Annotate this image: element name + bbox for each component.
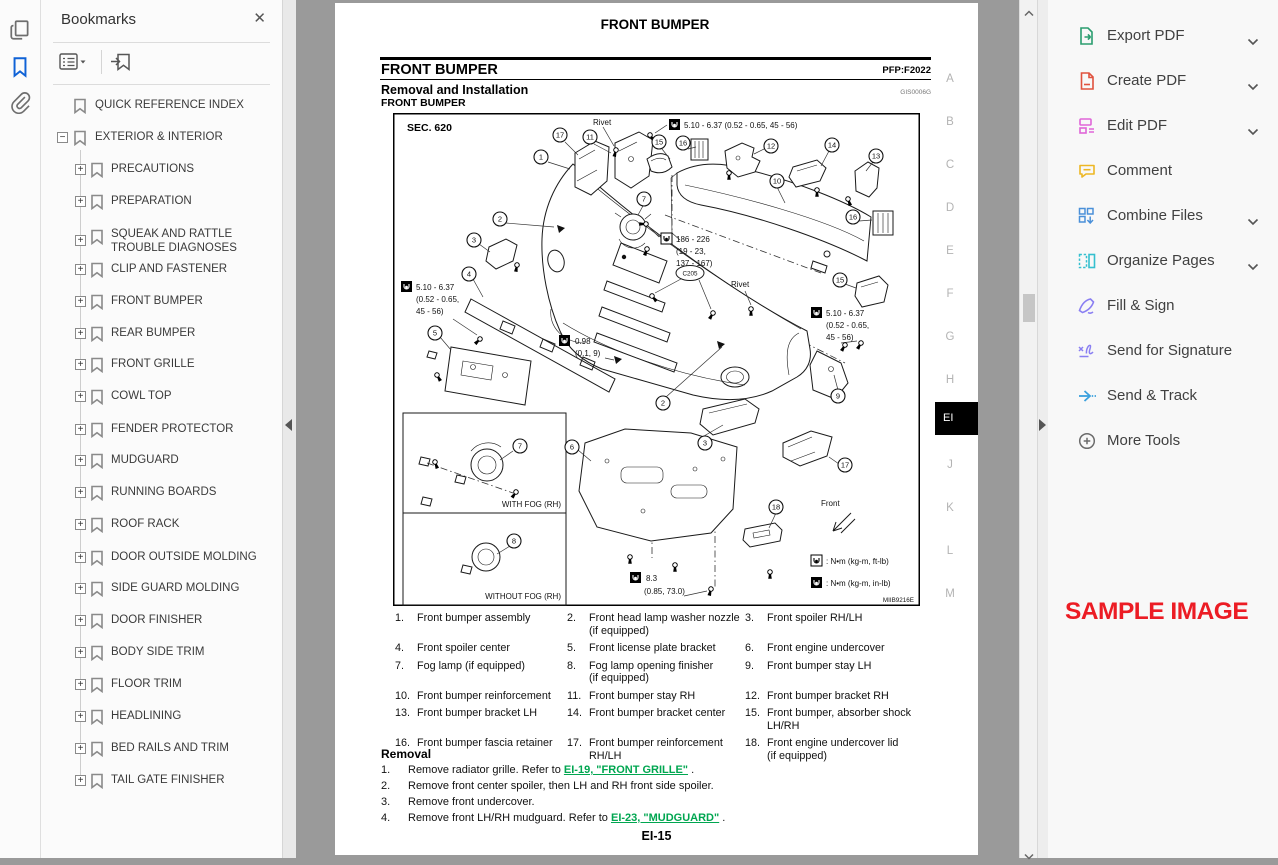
expander-plus-icon[interactable]: +	[75, 519, 86, 530]
bookmark-flag-icon	[90, 709, 104, 725]
divider	[380, 79, 931, 80]
create-pdf-icon	[1077, 71, 1097, 91]
part-number: 13.	[395, 707, 417, 732]
bookmark-item-quick-reference-index[interactable]: QUICK REFERENCE INDEX	[41, 95, 280, 117]
part-number: 3.	[745, 612, 767, 637]
vertical-scrollbar[interactable]	[1019, 0, 1038, 858]
send-signature-icon	[1077, 341, 1097, 361]
torque-value: 137 - 167)	[676, 259, 713, 268]
torque-value: 5.10 - 6.37 (0.52 - 0.65, 45 - 56)	[684, 121, 798, 130]
svg-text:7: 7	[518, 442, 522, 451]
bookmark-flag-icon	[90, 422, 104, 438]
bookmark-item-label: DOOR OUTSIDE MOLDING	[111, 551, 257, 565]
bookmark-item-body-side-trim[interactable]: +BODY SIDE TRIM	[41, 642, 280, 664]
bookmark-item-rear-bumper[interactable]: +REAR BUMPER	[41, 323, 280, 345]
part-number: 15.	[745, 707, 767, 732]
section-tab-e[interactable]: E	[935, 245, 965, 257]
bookmark-flag-icon	[90, 677, 104, 693]
part-label: Front spoiler RH/LH	[767, 612, 923, 637]
expander-plus-icon[interactable]: +	[75, 328, 86, 339]
part-number: 4.	[395, 642, 417, 655]
tool-item-label: Send & Track	[1107, 387, 1197, 404]
svg-text:2: 2	[661, 399, 665, 408]
part-number: 12.	[745, 690, 767, 703]
bookmark-item-label: RUNNING BOARDS	[111, 486, 216, 500]
section-tab-b[interactable]: B	[935, 116, 965, 128]
svg-text:15: 15	[836, 276, 844, 285]
svg-text:17: 17	[841, 461, 849, 470]
bookmark-flag-icon	[90, 389, 104, 405]
bookmark-flag-icon	[90, 162, 104, 178]
part-number: 18.	[745, 737, 767, 762]
export-pdf-icon	[1077, 26, 1097, 46]
part-label: Front engine undercover lid (if equipped…	[767, 737, 923, 762]
svg-text:16: 16	[849, 213, 857, 222]
expander-plus-icon[interactable]: +	[75, 583, 86, 594]
part-label: Front engine undercover	[767, 642, 923, 655]
bookmark-item-label: TAIL GATE FINISHER	[111, 774, 225, 788]
part-number: 6.	[745, 642, 767, 655]
bookmark-flag-icon	[90, 517, 104, 533]
section-tab-a[interactable]: A	[935, 73, 965, 85]
part-label: Front bumper fascia retainer	[417, 737, 567, 762]
part-label: Front bumper assembly	[417, 612, 567, 637]
svg-text:4: 4	[467, 270, 471, 279]
bookmark-item-label: REAR BUMPER	[111, 327, 195, 341]
combine-files-icon	[1077, 206, 1097, 226]
svg-text:11: 11	[586, 133, 594, 142]
bookmark-item-label: PRECAUTIONS	[111, 163, 194, 177]
bookmark-item-mudguard[interactable]: +MUDGUARD	[41, 450, 280, 472]
collapse-right-icon[interactable]	[1039, 419, 1046, 431]
chevron-down-icon[interactable]	[1247, 213, 1259, 221]
comment-icon	[1077, 161, 1097, 181]
bookmark-item-floor-trim[interactable]: +FLOOR TRIM	[41, 674, 280, 696]
bookmark-item-label: ROOF RACK	[111, 518, 179, 532]
section-tab-j[interactable]: J	[935, 459, 965, 471]
bookmark-flag-icon	[90, 357, 104, 373]
bookmark-item-front-bumper[interactable]: +FRONT BUMPER	[41, 291, 280, 313]
section-tab-l[interactable]: L	[935, 545, 965, 557]
bookmark-item-tail-gate-finisher[interactable]: +TAIL GATE FINISHER	[41, 770, 280, 792]
organize-pages-icon	[1077, 251, 1097, 271]
sample-image-watermark: SAMPLE IMAGE	[1065, 598, 1248, 626]
expander-plus-icon[interactable]: +	[75, 296, 86, 307]
bookmark-item-preparation[interactable]: +PREPARATION	[41, 191, 280, 213]
cross-reference-link-ei-19[interactable]: EI-19, "FRONT GRILLE"	[564, 764, 688, 776]
tool-item-create-pdf[interactable]: Create PDF	[1047, 59, 1278, 104]
bookmark-flag-icon	[90, 645, 104, 661]
bookmark-item-label: EXTERIOR & INTERIOR	[95, 131, 223, 145]
more-tools-icon	[1077, 431, 1097, 451]
figure-code: MIIB9216E	[883, 597, 914, 604]
expander-plus-icon[interactable]: +	[75, 552, 86, 563]
part-number: 9.	[745, 660, 767, 685]
bookmark-item-label: FENDER PROTECTOR	[111, 423, 233, 437]
part-label: Front bumper stay LH	[767, 660, 923, 685]
svg-text:14: 14	[828, 141, 836, 150]
tools-collapse-strip[interactable]	[1037, 0, 1048, 858]
send-track-icon	[1077, 386, 1097, 406]
expander-plus-icon[interactable]: +	[75, 647, 86, 658]
tool-item-label: Edit PDF	[1107, 117, 1167, 134]
scrollbar-thumb[interactable]	[1023, 294, 1035, 322]
part-number: 14.	[567, 707, 589, 732]
torque-value: 5.10 - 6.37	[416, 283, 455, 292]
bookmark-item-label: BODY SIDE TRIM	[111, 646, 205, 660]
rivet-label: Rivet	[731, 280, 750, 289]
bookmark-item-side-guard-molding[interactable]: +SIDE GUARD MOLDING	[41, 578, 280, 600]
legend-inlb: : N•m (kg-m, in-lb)	[826, 579, 891, 588]
tool-item-comment[interactable]: Comment	[1047, 149, 1278, 194]
part-label: Front bumper, absorber shock LH/RH	[767, 707, 923, 732]
pdf-page: FRONT BUMPER FRONT BUMPER PFP:F2022 Remo…	[335, 3, 978, 855]
close-icon[interactable]: ✕	[253, 9, 266, 27]
bookmark-item-door-finisher[interactable]: +DOOR FINISHER	[41, 610, 280, 632]
bookmark-item-front-grille[interactable]: +FRONT GRILLE	[41, 354, 280, 376]
bookmark-options-icon[interactable]	[59, 52, 87, 77]
bookmarks-panel-title: Bookmarks	[61, 11, 136, 28]
bookmark-flag-icon	[90, 613, 104, 629]
part-label: Front license plate bracket	[589, 642, 745, 655]
removal-step: 3.Remove front undercover.	[381, 796, 725, 812]
step-text: Remove front LH/RH mudguard. Refer to	[408, 812, 611, 824]
divider	[53, 84, 270, 85]
expander-minus-icon[interactable]: −	[57, 132, 68, 143]
bookmark-flag-icon	[90, 741, 104, 757]
svg-text:13: 13	[872, 152, 880, 161]
expander-plus-icon[interactable]: +	[75, 711, 86, 722]
tool-item-label: More Tools	[1107, 432, 1180, 449]
diagram-sec-label: SEC. 620	[407, 122, 452, 134]
removal-steps: 1.Remove radiator grille. Refer to EI-19…	[381, 764, 725, 828]
bookmark-item-label: MUDGUARD	[111, 454, 179, 468]
expander-plus-icon[interactable]: +	[75, 164, 86, 175]
tool-item-label: Create PDF	[1107, 72, 1186, 89]
tool-item-label: Send for Signature	[1107, 342, 1232, 359]
expander-plus-icon[interactable]: +	[75, 424, 86, 435]
chevron-down-icon[interactable]	[1247, 78, 1259, 86]
part-number: 7.	[395, 660, 417, 685]
expander-plus-icon[interactable]: +	[75, 235, 86, 246]
bookmark-item-roof-rack[interactable]: +ROOF RACK	[41, 514, 280, 536]
tool-item-fill-sign[interactable]: Fill & Sign	[1047, 284, 1278, 329]
bookmark-item-label: HEADLINING	[111, 710, 181, 724]
scroll-down-icon[interactable]	[1024, 847, 1034, 865]
removal-step: 1.Remove radiator grille. Refer to EI-19…	[381, 764, 725, 780]
chevron-down-icon[interactable]	[1247, 258, 1259, 266]
svg-text:8: 8	[512, 537, 516, 546]
pfp-code: PFP:F2022	[380, 65, 931, 76]
svg-text:7: 7	[642, 195, 646, 204]
svg-text:17: 17	[556, 131, 564, 140]
attachments-icon[interactable]	[8, 90, 32, 114]
bookmark-flag-icon	[90, 326, 104, 342]
edit-pdf-icon	[1077, 116, 1097, 136]
bookmark-item-exterior-interior[interactable]: −EXTERIOR & INTERIOR	[41, 127, 280, 149]
step-number: 4.	[381, 812, 408, 824]
step-number: 2.	[381, 780, 408, 792]
page-thumbnails-icon[interactable]	[8, 18, 32, 42]
rivet-label: Rivet	[593, 118, 612, 127]
torque-value: 45 - 56)	[826, 333, 854, 342]
section-tab-d[interactable]: D	[935, 202, 965, 214]
part-number: 10.	[395, 690, 417, 703]
part-number: 2.	[567, 612, 589, 637]
torque-value: (0.1, 9)	[575, 349, 601, 358]
collapse-left-icon[interactable]	[285, 419, 292, 431]
with-fog-label: WITH FOG (RH)	[502, 500, 561, 509]
divider	[380, 57, 931, 60]
bookmark-item-running-boards[interactable]: +RUNNING BOARDS	[41, 482, 280, 504]
bookmark-flag-icon	[90, 294, 104, 310]
chevron-down-icon[interactable]	[1247, 123, 1259, 131]
step-text: Remove radiator grille. Refer to	[408, 764, 564, 776]
torque-value: 45 - 56)	[416, 307, 444, 316]
bookmark-item-squeak-and-rattle-trouble-diagnoses[interactable]: +SQUEAK AND RATTLE TROUBLE DIAGNOSES	[41, 226, 280, 256]
torque-value: (0.52 - 0.65,	[826, 321, 869, 330]
expander-plus-icon[interactable]: +	[75, 455, 86, 466]
section-tab-c[interactable]: C	[935, 159, 965, 171]
tool-item-edit-pdf[interactable]: Edit PDF	[1047, 104, 1278, 149]
svg-text:3: 3	[472, 236, 476, 245]
section-tab-ei-active[interactable]: EI	[935, 402, 978, 435]
running-header: FRONT BUMPER	[380, 17, 930, 32]
step-number: 3.	[381, 796, 408, 808]
tool-item-label: Organize Pages	[1107, 252, 1215, 269]
section-tab-f[interactable]: F	[935, 288, 965, 300]
tool-item-combine-files[interactable]: Combine Files	[1047, 194, 1278, 239]
bookmark-flag-icon	[90, 581, 104, 597]
sub-label: FRONT BUMPER	[381, 97, 466, 109]
scroll-up-icon[interactable]	[1024, 4, 1034, 22]
step-number: 1.	[381, 764, 408, 776]
bookmark-flag-icon	[90, 262, 104, 278]
expander-plus-icon[interactable]: +	[75, 615, 86, 626]
torque-value: (19 - 23,	[676, 247, 706, 256]
bookmark-item-label: FRONT BUMPER	[111, 295, 203, 309]
chevron-down-icon[interactable]	[1247, 33, 1259, 41]
tool-item-label: Export PDF	[1107, 27, 1185, 44]
bookmark-item-label: BED RAILS AND TRIM	[111, 742, 229, 756]
section-tab-m[interactable]: M	[935, 588, 965, 600]
step-text: Remove front undercover.	[408, 796, 535, 808]
step-text: .	[688, 764, 694, 776]
part-label: Front bumper bracket RH	[767, 690, 923, 703]
bookmark-tree: QUICK REFERENCE INDEX−EXTERIOR & INTERIO…	[41, 86, 282, 858]
svg-text:6: 6	[570, 443, 574, 452]
bookmark-item-label: FLOOR TRIM	[111, 678, 182, 692]
page-number: EI-15	[335, 829, 978, 843]
svg-text:5: 5	[433, 329, 437, 338]
removal-step: 4.Remove front LH/RH mudguard. Refer to …	[381, 812, 725, 828]
torque-value: (0.52 - 0.65,	[416, 295, 459, 304]
torque-value: 8.3	[646, 574, 658, 583]
part-number: 8.	[567, 660, 589, 685]
expander-plus-icon[interactable]: +	[75, 391, 86, 402]
svg-text:15: 15	[655, 138, 663, 147]
bookmark-flag-icon	[73, 98, 87, 114]
bookmark-flag-icon	[90, 485, 104, 501]
fill-sign-icon	[1077, 296, 1097, 316]
removal-heading: Removal	[381, 747, 431, 761]
bookmark-item-clip-and-fastener[interactable]: +CLIP AND FASTENER	[41, 259, 280, 281]
bookmark-item-door-outside-molding[interactable]: +DOOR OUTSIDE MOLDING	[41, 547, 280, 569]
svg-text:9: 9	[836, 392, 840, 401]
bookmark-flag-icon	[90, 773, 104, 789]
bookmark-item-bed-rails-and-trim[interactable]: +BED RAILS AND TRIM	[41, 738, 280, 760]
exploded-diagram: SEC. 620	[393, 113, 920, 606]
step-text: .	[719, 812, 725, 824]
expander-plus-icon[interactable]: +	[75, 359, 86, 370]
bookmark-flag-icon	[73, 130, 87, 146]
bookmarks-panel: Bookmarks ✕ QUICK REFERENCE INDEX−EXTERI…	[41, 0, 282, 858]
svg-text:10: 10	[773, 177, 781, 186]
expander-plus-icon[interactable]: +	[75, 264, 86, 275]
parts-list: 1.Front bumper assembly2.Front head lamp…	[395, 612, 923, 762]
bookmark-flag-icon	[90, 229, 104, 245]
left-tool-rail	[0, 0, 41, 858]
tool-item-more-tools[interactable]: More Tools	[1047, 419, 1278, 464]
torque-value: 186 - 226	[676, 235, 710, 244]
connector-label: C205	[682, 271, 698, 278]
tool-item-organize-pages[interactable]: Organize Pages	[1047, 239, 1278, 284]
torque-value: 5.10 - 6.37	[826, 309, 865, 318]
part-label: Front head lamp washer nozzle (if equipp…	[589, 612, 745, 637]
torque-value: (0.85, 73.0)	[644, 587, 685, 596]
torque-value: 0.98	[575, 337, 591, 346]
bookmarks-icon[interactable]	[8, 55, 32, 79]
divider	[53, 42, 270, 43]
part-label: Front bumper reinforcement	[417, 690, 567, 703]
expander-plus-icon[interactable]: +	[75, 775, 86, 786]
legend-ftlb: : N•m (kg-m, ft-lb)	[826, 557, 889, 566]
part-number: 5.	[567, 642, 589, 655]
bookmark-item-fender-protector[interactable]: +FENDER PROTECTOR	[41, 419, 280, 441]
bookmark-item-label: FRONT GRILLE	[111, 358, 195, 372]
doc-code: GIS0006G	[380, 89, 931, 96]
part-label: Front bumper reinforcement RH/LH	[589, 737, 745, 762]
bookmark-item-label: CLIP AND FASTENER	[111, 263, 227, 277]
part-label: Fog lamp opening finisher (if equipped)	[589, 660, 745, 685]
removal-step: 2.Remove front center spoiler, then LH a…	[381, 780, 725, 796]
expander-plus-icon[interactable]: +	[75, 487, 86, 498]
bookmark-flag-icon	[90, 453, 104, 469]
tool-item-send-for-signature[interactable]: Send for Signature	[1047, 329, 1278, 374]
part-label: Front spoiler center	[417, 642, 567, 655]
part-label: Fog lamp (if equipped)	[417, 660, 567, 685]
expander-plus-icon[interactable]: +	[75, 679, 86, 690]
tool-item-send-track[interactable]: Send & Track	[1047, 374, 1278, 419]
svg-text:1: 1	[539, 153, 543, 162]
divider	[101, 50, 102, 74]
bookmark-flag-icon	[90, 194, 104, 210]
part-label: Front bumper bracket center	[589, 707, 745, 732]
svg-text:16: 16	[679, 139, 687, 148]
section-tab-g[interactable]: G	[935, 331, 965, 343]
tool-item-label: Fill & Sign	[1107, 297, 1175, 314]
svg-text:3: 3	[703, 439, 707, 448]
bookmark-item-label: QUICK REFERENCE INDEX	[95, 99, 244, 113]
svg-text:18: 18	[772, 503, 780, 512]
front-label: Front	[821, 499, 840, 508]
tools-panel: SAMPLE IMAGE Export PDFCreate PDFEdit PD…	[1047, 0, 1278, 858]
bookmark-flag-icon	[90, 550, 104, 566]
section-tab-k[interactable]: K	[935, 502, 965, 514]
expander-plus-icon[interactable]: +	[75, 743, 86, 754]
tool-item-export-pdf[interactable]: Export PDF	[1047, 14, 1278, 59]
svg-text:2: 2	[498, 215, 502, 224]
bookmarks-collapse-strip[interactable]	[282, 0, 296, 858]
part-number: 1.	[395, 612, 417, 637]
svg-text:12: 12	[767, 142, 775, 151]
bookmark-item-label: PREPARATION	[111, 195, 192, 209]
bookmark-item-cowl-top[interactable]: +COWL TOP	[41, 386, 280, 408]
part-number: 11.	[567, 690, 589, 703]
bookmark-item-headlining[interactable]: +HEADLINING	[41, 706, 280, 728]
tool-item-label: Combine Files	[1107, 207, 1203, 224]
tool-item-label: Comment	[1107, 162, 1172, 179]
bookmark-item-label: COWL TOP	[111, 390, 172, 404]
bookmark-item-label: DOOR FINISHER	[111, 614, 202, 628]
cross-reference-link-ei-23[interactable]: EI-23, "MUDGUARD"	[611, 812, 719, 824]
step-text: Remove front center spoiler, then LH and…	[408, 780, 714, 792]
bookmark-item-precautions[interactable]: +PRECAUTIONS	[41, 159, 280, 181]
bookmark-item-label: SQUEAK AND RATTLE TROUBLE DIAGNOSES	[111, 228, 237, 255]
part-label: Front bumper stay RH	[589, 690, 745, 703]
expander-plus-icon[interactable]: +	[75, 196, 86, 207]
part-label: Front bumper bracket LH	[417, 707, 567, 732]
part-number: 17.	[567, 737, 589, 762]
section-tab-h[interactable]: H	[935, 374, 965, 386]
new-bookmark-icon[interactable]	[109, 52, 135, 77]
bookmark-item-label: SIDE GUARD MOLDING	[111, 582, 239, 596]
without-fog-label: WITHOUT FOG (RH)	[485, 592, 561, 601]
